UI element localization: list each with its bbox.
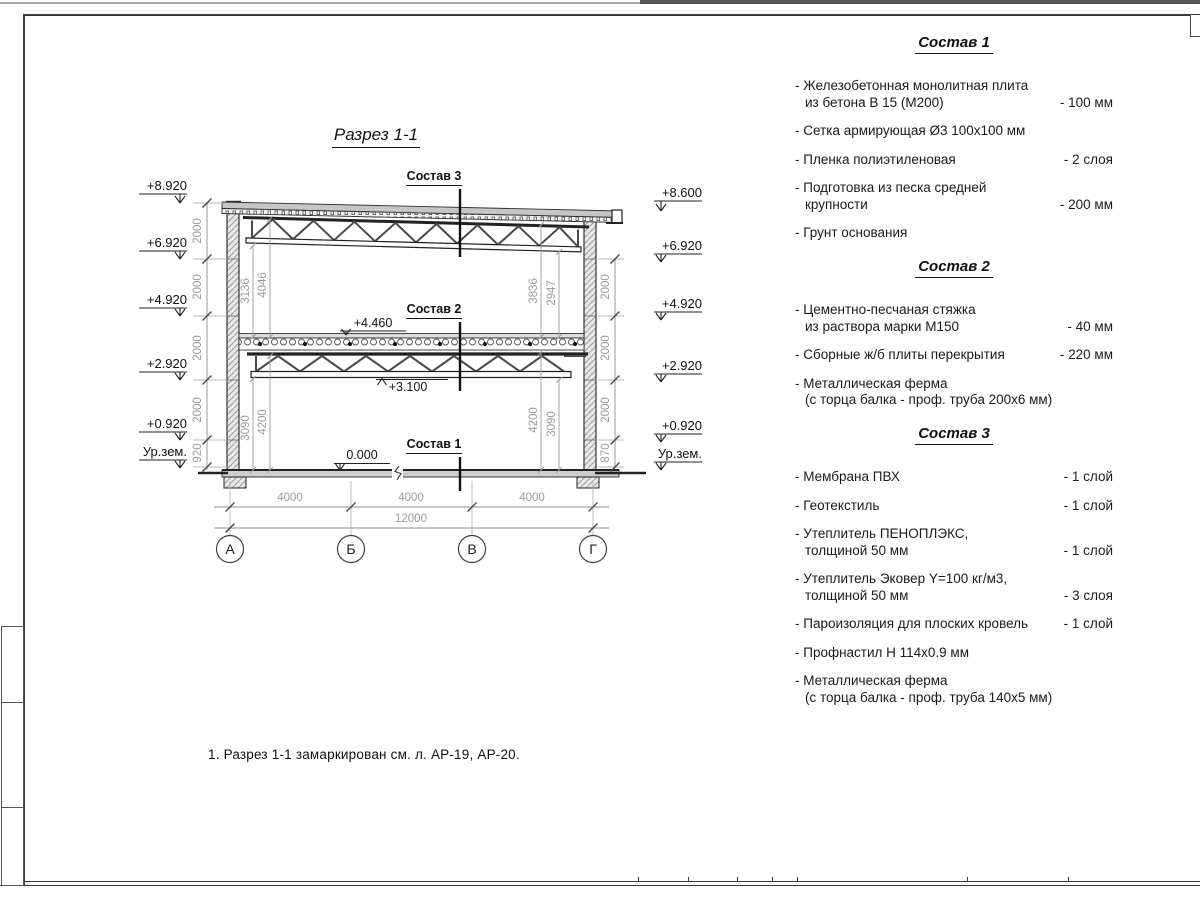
spec-item: - Геотекстиль - 1 слой <box>795 498 1113 515</box>
spec-item: - Сборные ж/б плиты перекрытия - 220 мм <box>795 347 1113 364</box>
elevation-mark: +2.920 <box>139 356 187 380</box>
dimension-label: 3090 <box>240 415 252 441</box>
spec-item: - Утеплитель Эковер Y=100 кг/м3,толщиной… <box>795 571 1113 604</box>
elevation-label: +6.920 <box>662 238 702 253</box>
spec-item: - Грунт основания <box>795 225 1113 242</box>
right-wall <box>584 211 596 470</box>
dimension-label: 920 <box>192 443 204 462</box>
spec-item-value: - 1 слой <box>1058 543 1113 560</box>
elevation-label: +6.920 <box>147 235 187 250</box>
spec-item-text2: толщиной 50 мм <box>795 588 1058 605</box>
elevation-label: +0.920 <box>662 418 702 433</box>
dimension-label: 2000 <box>600 335 612 361</box>
dimension-chain-right: 2000 2000 2000 870 <box>598 255 624 472</box>
spec-item: - Сетка армирующая Ø3 100х100 мм <box>795 123 1113 140</box>
spec-section-3: Состав 3 - Мембрана ПВХ - 1 слой - Геоте… <box>795 425 1113 718</box>
spec-item: - Металлическая ферма(с торца балка - пр… <box>795 376 1113 409</box>
ground-level-mark: Ур.зем. <box>139 444 187 468</box>
elevation-mark: +6.920 <box>139 235 187 259</box>
spec-section-2: Состав 2 - Цементно-песчаная стяжкаиз ра… <box>795 258 1113 421</box>
dimension-label: 2947 <box>546 280 558 306</box>
spec-item-text2: толщиной 50 мм <box>795 543 1058 560</box>
dimension-label: 4000 <box>519 492 545 504</box>
spec-item-value: - 1 слой <box>1058 616 1113 633</box>
elevation-mark: +8.920 <box>139 178 187 203</box>
spec-item-text: - Профнастил Н 114х0.9 мм <box>795 645 1113 662</box>
roof-eave-cap <box>612 210 622 223</box>
floor-hollow-core-slab <box>239 338 584 350</box>
spec-item-text: - Пароизоляция для плоских кровель <box>795 616 1058 633</box>
composition-2-label: Состав 2 <box>404 302 464 319</box>
dimension-label: 870 <box>600 443 612 462</box>
elevation-label: +8.600 <box>662 185 702 200</box>
elevation-mark: +6.920 <box>654 238 702 262</box>
spec-item: - Утеплитель ПЕНОПЛЭКС,толщиной 50 мм - … <box>795 526 1113 559</box>
spec-item-value: - 200 мм <box>1054 197 1113 214</box>
elevation-label: +0.920 <box>147 416 187 431</box>
axis-label: А <box>225 541 235 557</box>
spec-item-value: - 100 мм <box>1054 95 1113 112</box>
level-mark-floor1-top: 0.000 <box>334 448 390 470</box>
spec-item: - Профнастил Н 114х0.9 мм <box>795 645 1113 662</box>
dimension-label: 2000 <box>600 397 612 423</box>
spec-item-text2: крупности <box>795 197 1054 214</box>
spec-item-value: - 3 слоя <box>1058 588 1113 605</box>
spec-item: - Подготовка из песка среднейкрупности -… <box>795 180 1113 213</box>
axis-label: Б <box>346 541 355 557</box>
axis-label: В <box>467 541 476 557</box>
elevation-mark: +2.920 <box>654 358 702 382</box>
spec-item-text: - Железобетонная монолитная плита <box>795 78 1054 95</box>
level-mark-floor2-top: +4.460 <box>340 316 406 335</box>
spec-item-text2: из раствора марки М150 <box>795 319 1061 336</box>
dimension-label: 4000 <box>398 492 424 504</box>
dimension-label: 2000 <box>192 274 204 300</box>
spec-item-value: - 1 слой <box>1058 498 1113 515</box>
dimension-label: 2000 <box>192 335 204 361</box>
elevation-marks-left: +8.920 +6.920 +4.920 +2.920 +0.920 Ур.зе… <box>139 178 187 468</box>
drawing-title: Разрез 1-1 <box>318 125 434 148</box>
composition-3-label: Состав 3 <box>404 169 464 186</box>
spec-item: - Пароизоляция для плоских кровель - 1 с… <box>795 616 1113 633</box>
left-footing <box>224 477 246 488</box>
spec-item-text: - Утеплитель Эковер Y=100 кг/м3, <box>795 571 1058 588</box>
drawing-sheet: { "page": { "title": "Разрез 1-1", "note… <box>0 0 1200 900</box>
spec-item-text: - Мембрана ПВХ <box>795 469 1058 486</box>
spec-item-value: - 220 мм <box>1054 347 1113 364</box>
spec-item-text: - Цементно-песчаная стяжка <box>795 302 1061 319</box>
spec-title: Состав 1 <box>795 34 1113 54</box>
composition-1-label: Состав 1 <box>404 437 464 454</box>
spec-item-text2: из бетона В 15 (М200) <box>795 95 1054 112</box>
dimension-label: 3836 <box>528 278 540 304</box>
elevation-label: Ур.зем. <box>658 446 702 461</box>
spec-item-text: - Сборные ж/б плиты перекрытия <box>795 347 1054 364</box>
dimension-label: 2000 <box>192 397 204 423</box>
spec-item: - Железобетонная монолитная плитаиз бето… <box>795 78 1113 111</box>
spec-item-text: - Металлическая ферма <box>795 673 1113 690</box>
spec-section-1: Состав 1 - Железобетонная монолитная пли… <box>795 34 1113 254</box>
dimension-label: 3090 <box>546 411 558 437</box>
elevation-label: +4.920 <box>147 292 187 307</box>
elevation-marks-right: +8.600 +6.920 +4.920 +2.920 +0.920 Ур.зе… <box>654 185 702 470</box>
axis-label: Г <box>589 541 597 557</box>
elevation-label: Ур.зем. <box>143 444 187 459</box>
floor-package <box>239 334 584 351</box>
spec-item-text2: (с торца балка - проф. труба 140х5 мм) <box>795 690 1113 707</box>
spec-title: Состав 3 <box>795 425 1113 445</box>
elevation-mark: +0.920 <box>139 416 187 440</box>
level-mark-truss2-bottom: +3.100 <box>376 379 448 395</box>
bottom-dimensions: 4000 4000 4000 12000 <box>214 481 609 535</box>
spec-item-text: - Утеплитель ПЕНОПЛЭКС, <box>795 526 1058 543</box>
spec-item: - Пленка полиэтиленовая - 2 слоя <box>795 152 1113 169</box>
elevation-label: +4.920 <box>662 296 702 311</box>
drawing-note: 1. Разрез 1-1 замаркирован см. л. АР-19,… <box>208 747 520 762</box>
spec-item: - Мембрана ПВХ - 1 слой <box>795 469 1113 486</box>
spec-item-value: - 1 слой <box>1058 469 1113 486</box>
elevation-mark: +4.920 <box>654 296 702 320</box>
spec-item: - Металлическая ферма(с торца балка - пр… <box>795 673 1113 706</box>
dimension-label: 3136 <box>240 278 252 304</box>
roof-truss <box>243 218 589 252</box>
floor-truss <box>247 354 588 378</box>
floor-truss-web <box>256 356 564 372</box>
spec-item-text: - Подготовка из песка средней <box>795 180 1054 197</box>
left-wall <box>227 203 239 470</box>
ground-slab <box>198 466 646 488</box>
dimension-label: 4000 <box>277 492 303 504</box>
elevation-label: +2.920 <box>662 358 702 373</box>
elevation-label: +2.920 <box>147 356 187 371</box>
dimension-label: 4200 <box>528 407 540 433</box>
elevation-label: +8.920 <box>147 178 187 193</box>
svg-text:0.000: 0.000 <box>346 448 377 462</box>
spec-item-text: - Металлическая ферма <box>795 376 1113 393</box>
spec-item-text: - Геотекстиль <box>795 498 1058 515</box>
dimension-label: 2000 <box>192 218 204 244</box>
spec-item-text: - Пленка полиэтиленовая <box>795 152 1058 169</box>
column-axes: А Б В Г <box>217 536 607 563</box>
elevation-mark: +0.920 <box>654 418 702 442</box>
dimension-label: 4046 <box>257 272 269 298</box>
slab-break-mark <box>392 466 403 480</box>
right-footing <box>577 477 599 488</box>
spec-item-text2: (с торца балка - проф. труба 200х6 мм) <box>795 392 1113 409</box>
spec-title: Состав 2 <box>795 258 1113 278</box>
dimension-label: 12000 <box>395 513 427 525</box>
elevation-mark: +8.600 <box>654 185 702 211</box>
svg-text:+3.100: +3.100 <box>389 380 428 394</box>
ground-level-mark: Ур.зем. <box>654 446 702 470</box>
spec-item-text: - Сетка армирующая Ø3 100х100 мм <box>795 123 1107 140</box>
dimension-chain-left: 2000 2000 2000 2000 920 <box>192 199 227 472</box>
elevation-mark: +4.920 <box>139 292 187 316</box>
spec-item: - Цементно-песчаная стяжкаиз раствора ма… <box>795 302 1113 335</box>
svg-text:+4.460: +4.460 <box>354 316 393 330</box>
dimension-label: 4200 <box>257 409 269 435</box>
floor-truss-bottom-chord <box>251 372 571 378</box>
floor-screed-layer <box>239 334 584 339</box>
spec-item-value: - 40 мм <box>1061 319 1113 336</box>
spec-item-text: - Грунт основания <box>795 225 1113 242</box>
spec-item-value: - 2 слоя <box>1058 152 1113 169</box>
dimension-label: 2000 <box>600 274 612 300</box>
